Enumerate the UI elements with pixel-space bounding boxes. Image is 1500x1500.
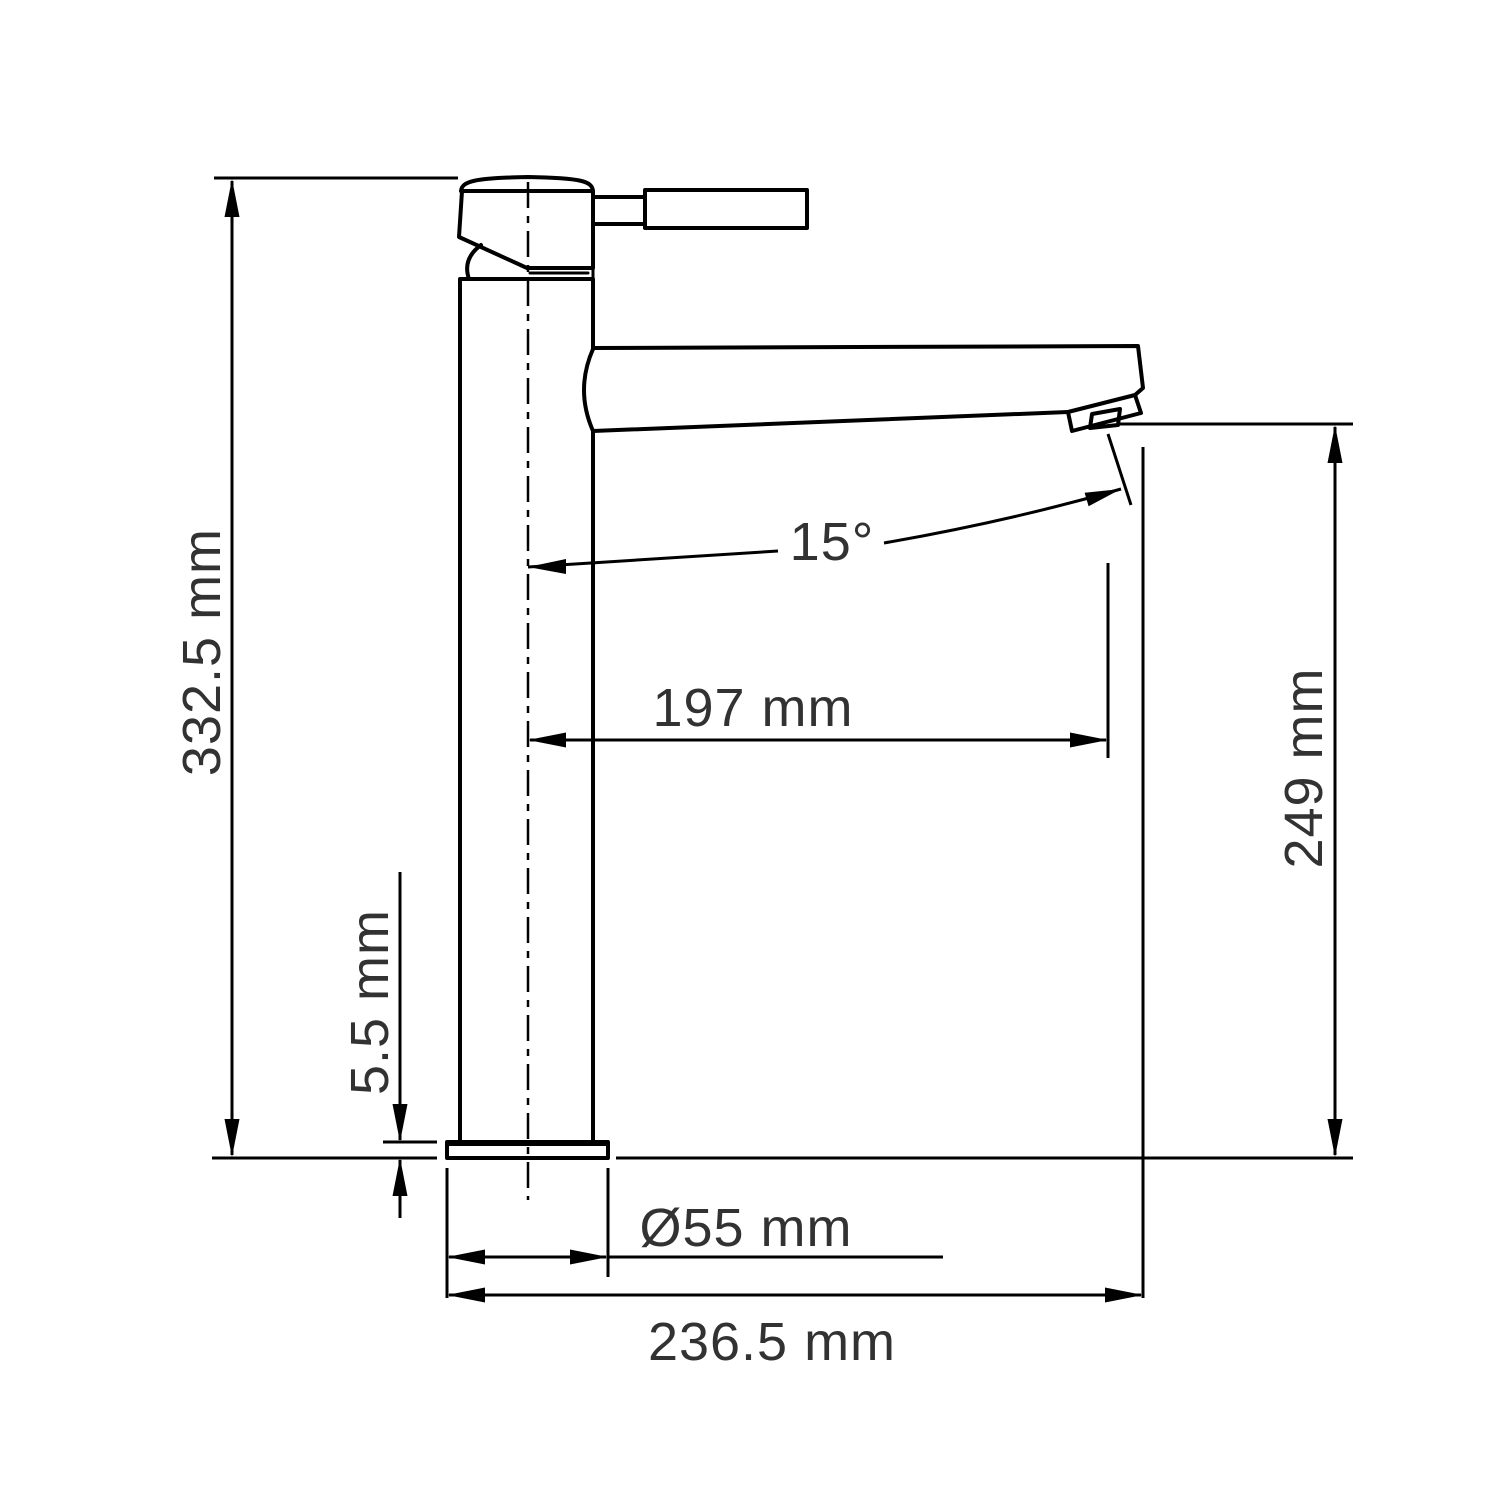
arrowhead-right xyxy=(1070,733,1108,748)
dim-spout-angle: 15° xyxy=(528,434,1131,574)
arrowhead-up xyxy=(225,179,240,217)
angle-leader-right xyxy=(884,489,1121,543)
dim-spout-height-label: 249 mm xyxy=(1274,667,1334,868)
arrowhead-left xyxy=(447,1288,485,1303)
dim-overall-depth-label: 236.5 mm xyxy=(648,1312,896,1372)
arrowhead-right xyxy=(1105,1288,1143,1303)
dim-base-thickness: 5.5 mm xyxy=(340,872,437,1218)
arrowhead-left xyxy=(447,1250,485,1265)
spout-fillet xyxy=(584,349,593,431)
dim-overall-height: 332.5 mm xyxy=(172,178,458,1157)
arrowhead-right xyxy=(570,1250,608,1265)
head-body xyxy=(459,191,593,268)
arrowhead-down xyxy=(225,1119,240,1157)
arrowhead-down xyxy=(1328,1119,1343,1157)
dim-spout-reach-label: 197 mm xyxy=(652,678,853,738)
arrowhead-up xyxy=(393,1158,408,1196)
handle-stem xyxy=(593,197,645,224)
spout-top-edge xyxy=(593,346,1143,395)
arrowhead-right xyxy=(1085,489,1121,506)
handle-grip xyxy=(645,190,807,228)
dim-spout-angle-label: 15° xyxy=(790,512,875,572)
technical-drawing-svg: 332.5 mm 5.5 mm 197 mm 249 mm 15° xyxy=(0,0,1500,1500)
dim-base-diameter: Ø55 mm xyxy=(447,1168,943,1298)
arrowhead-up xyxy=(1328,425,1343,463)
arrowhead-down xyxy=(393,1104,408,1142)
angle-face-tick xyxy=(1108,434,1131,505)
faucet-dimension-drawing: 332.5 mm 5.5 mm 197 mm 249 mm 15° xyxy=(0,0,1500,1500)
arrowhead-left xyxy=(528,559,566,574)
spout-bottom-edge xyxy=(593,412,1068,431)
dim-base-diameter-label: Ø55 mm xyxy=(639,1198,852,1258)
dim-overall-height-label: 332.5 mm xyxy=(172,528,232,776)
column-body xyxy=(460,279,593,1142)
dim-spout-reach: 197 mm xyxy=(528,563,1108,758)
dim-spout-height: 249 mm xyxy=(1120,424,1353,1157)
joint-arc xyxy=(467,245,481,279)
arrowhead-left xyxy=(528,733,566,748)
dim-base-thickness-label: 5.5 mm xyxy=(340,909,400,1095)
